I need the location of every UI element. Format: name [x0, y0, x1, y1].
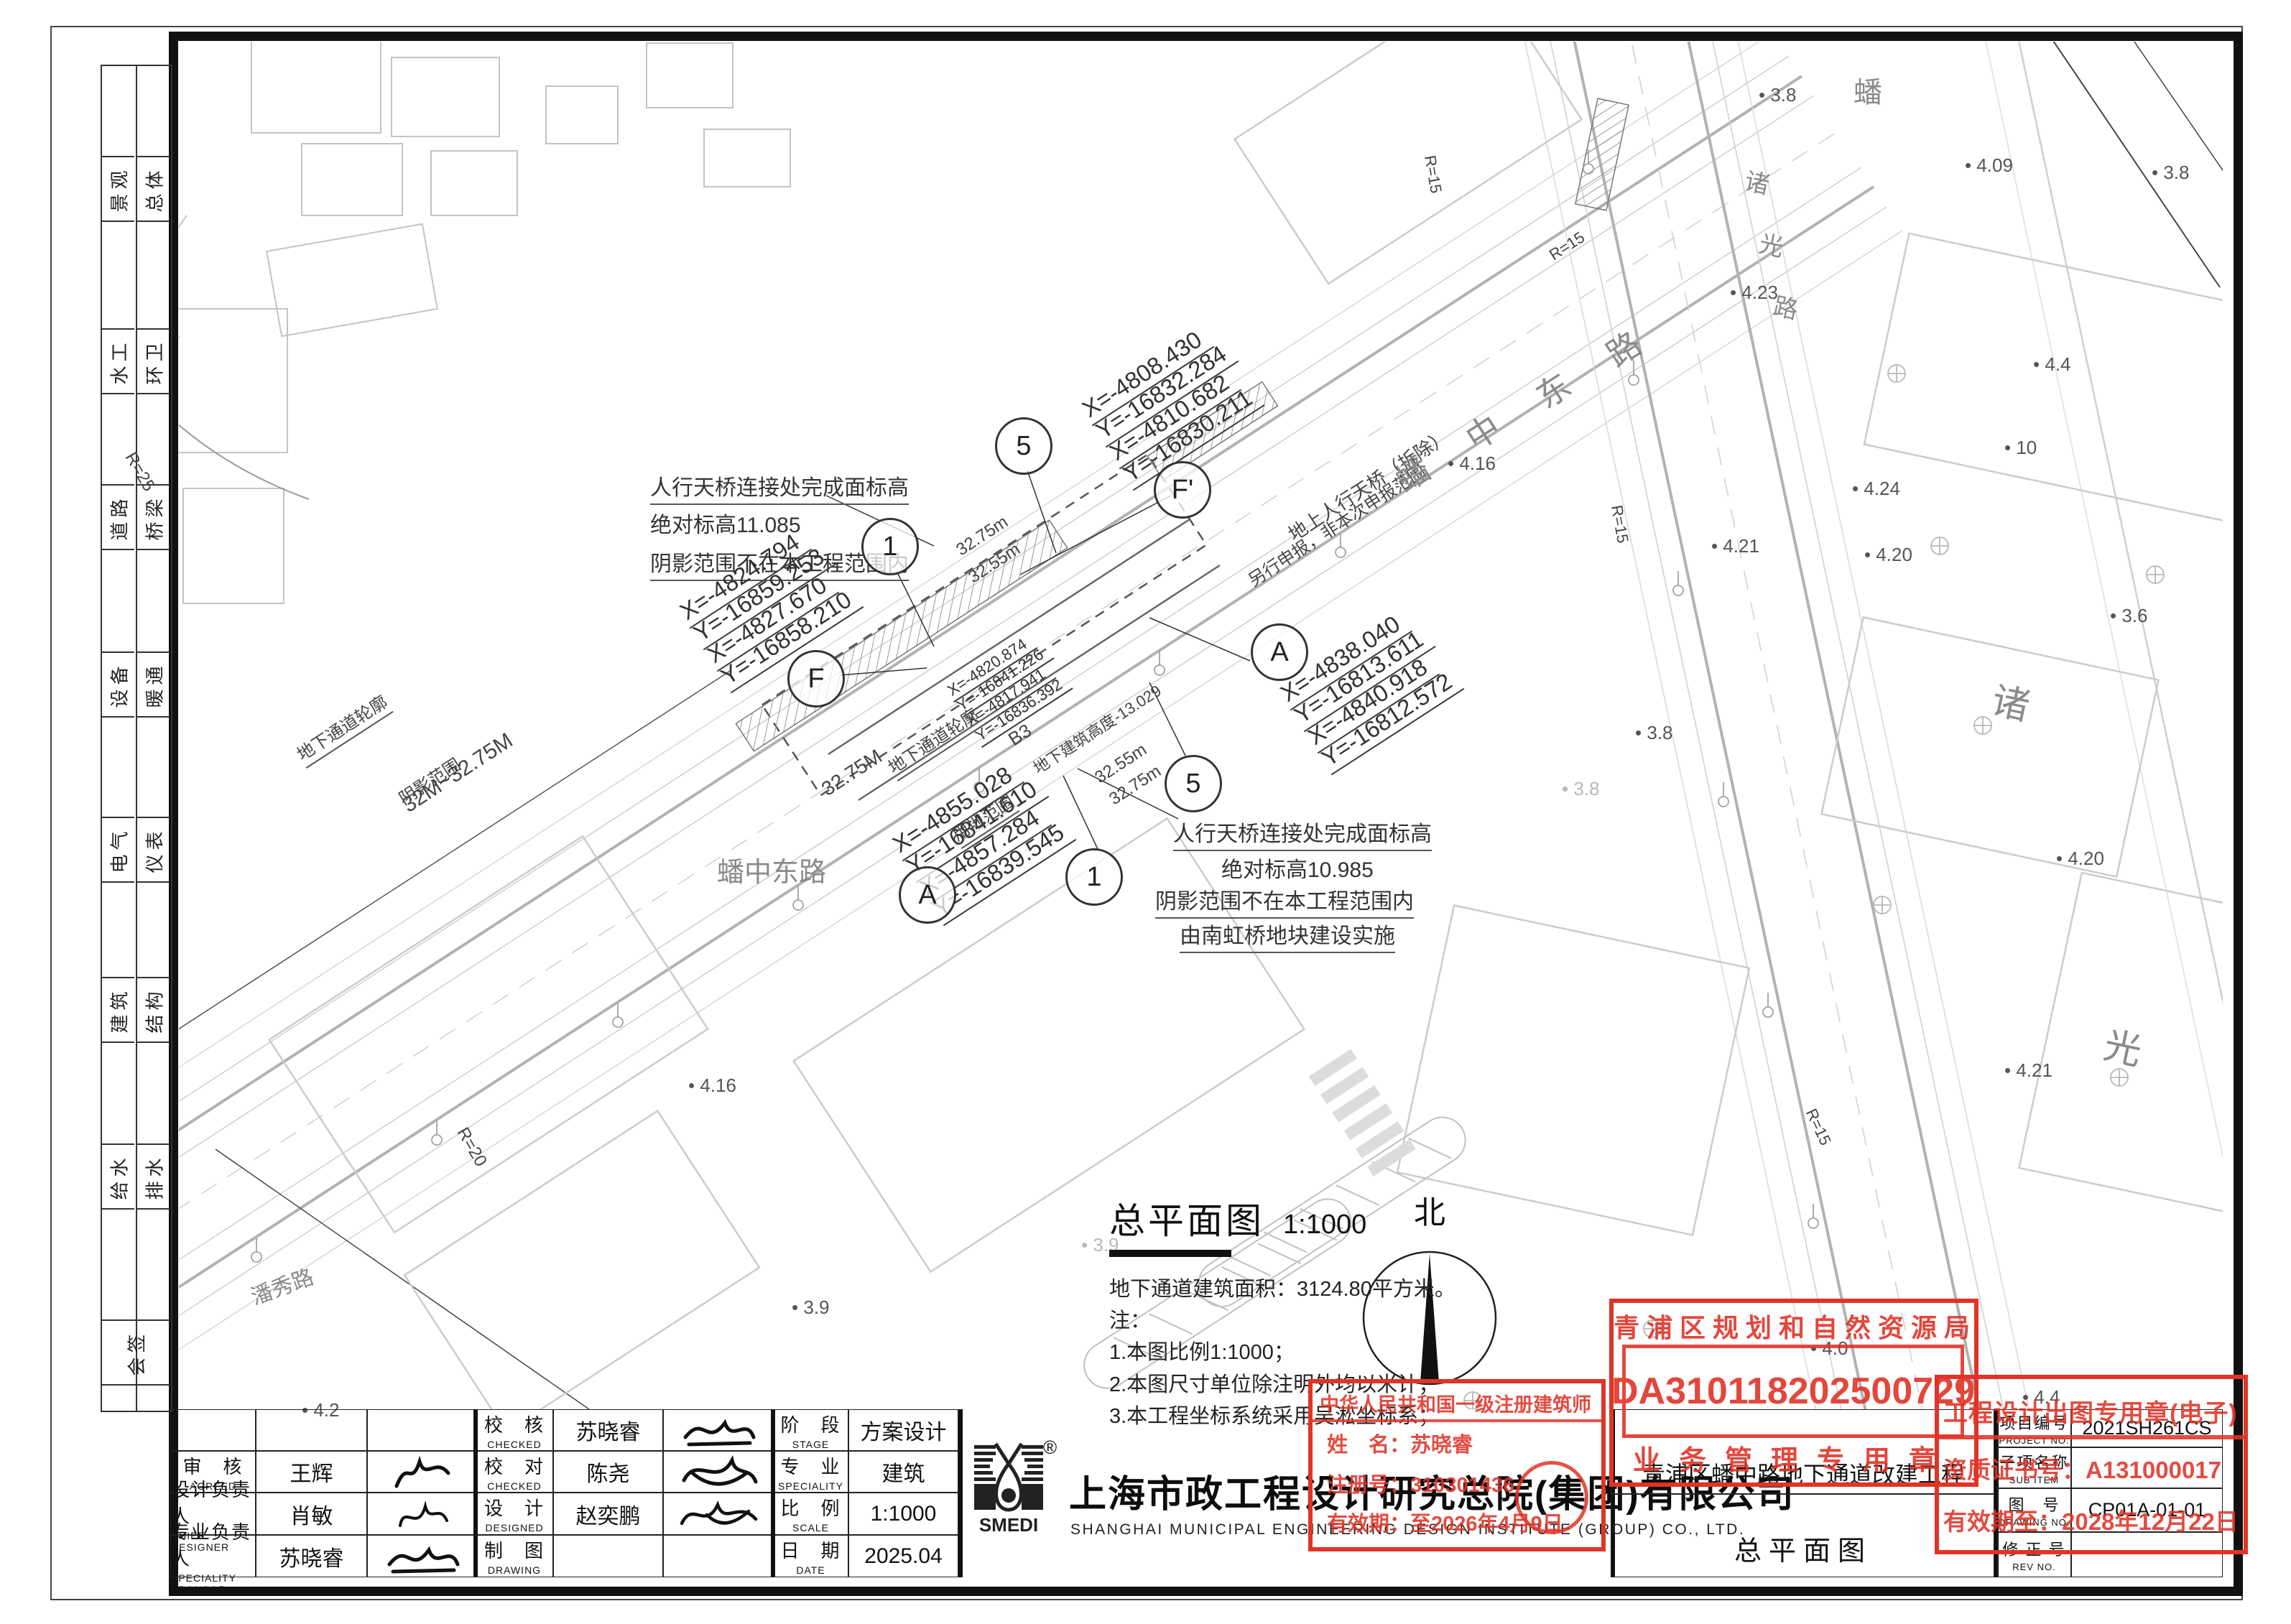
signoff-cell-水工: 水工	[102, 328, 134, 394]
rev-no-value	[2072, 1533, 2222, 1577]
checked-2-name: 陈尧	[554, 1452, 662, 1492]
designed-name: 赵奕鹏	[554, 1493, 662, 1534]
plan-label: 诸	[1988, 682, 2032, 728]
speciality-sponsor-name: 苏晓睿	[256, 1536, 366, 1577]
label-sub-item: 子项名称SUB ITEM	[1998, 1448, 2070, 1488]
callout-right-line1: 人行天桥连接处完成面标高	[1173, 823, 1432, 851]
spot-elevation: • 4.16	[688, 1075, 736, 1097]
grid-balloon-1: 1	[1065, 848, 1123, 906]
spot-elevation: • 3.8	[1635, 722, 1672, 744]
grid-balloon-A: A	[1251, 623, 1308, 681]
label-designed: 设 计DESIGNED	[476, 1493, 552, 1534]
spot-elevation: • 4.16	[1448, 453, 1496, 475]
spot-elevation: • 4.0	[1810, 1337, 1848, 1360]
callout-left-line2: 绝对标高11.085	[650, 514, 801, 537]
signoff-cell-暖通: 暖通	[137, 651, 170, 718]
spot-elevation: • 4.4	[2033, 353, 2070, 376]
plan-title: 总平面图	[1109, 1192, 1264, 1244]
note-area: 地下通道建筑面积：3124.80平方米。	[1109, 1277, 1455, 1301]
spot-elevation: • 10	[2004, 437, 2037, 459]
agreed-name: 王辉	[256, 1452, 366, 1492]
signoff-cell-总体: 总体	[137, 156, 170, 222]
note-1: 1.本图比例1:1000；	[1109, 1340, 1455, 1365]
speciality-value: 建筑	[849, 1452, 958, 1492]
label-scale: 比 例SCALE	[774, 1493, 848, 1534]
spot-elevation: • 4.24	[1852, 478, 1900, 500]
callout-right-line4: 由南虹桥地块建设实施	[1180, 925, 1395, 953]
signoff-cell-排水: 排水	[137, 1143, 170, 1210]
spot-elevation: • 4.20	[1864, 544, 1912, 566]
label-rev-no: 修 正 号REV NO.	[1998, 1533, 2070, 1577]
drawing-title: 总平面图	[1616, 1528, 1990, 1568]
signature-zhaoyipeng	[663, 1493, 773, 1535]
spot-elevation: • 4.21	[1711, 535, 1759, 557]
note-3: 3.本工程坐标系统采用吴淞坐标系；	[1109, 1404, 1455, 1429]
smedi-logo-text: SMEDI	[979, 1514, 1038, 1536]
spot-elevation: • 3.9	[792, 1296, 829, 1319]
signoff-strip: 景观总体水工环卫道路桥梁设备暖通电气仪表建筑结构给水排水会签	[101, 65, 172, 1412]
drawing-sheet: 景观总体水工环卫道路桥梁设备暖通电气仪表建筑结构给水排水会签 人行天桥连接处完成…	[0, 0, 2291, 1624]
signoff-cell-建筑: 建筑	[102, 977, 134, 1043]
signature-suxiaorui-1	[367, 1535, 476, 1577]
project-name: 青浦区蟠中路地下通道改建工程	[1616, 1457, 1990, 1490]
grid-balloon-F': F'	[1154, 461, 1211, 519]
label-checked-2: 校 对CHECKED	[476, 1452, 552, 1492]
signoff-cell-仪表: 仪表	[137, 817, 170, 883]
spot-elevation: • 4.09	[1965, 154, 2013, 177]
signoff-cell-给水: 给水	[102, 1143, 134, 1210]
spot-elevation: • 3.8	[1759, 84, 1796, 106]
drawing-no-value: CP01A-01-01	[2072, 1489, 2222, 1531]
spot-elevation: • 3.8	[2152, 162, 2189, 184]
grid-balloon-5: 5	[1165, 755, 1222, 812]
plan-title-underline	[1109, 1250, 1231, 1257]
signoff-cell-道路: 道路	[102, 484, 134, 550]
label-date: 日 期DATE	[774, 1536, 848, 1577]
label-project-no: 项目编号PROJECT NO.	[1998, 1410, 2070, 1447]
spot-elevation: • 3.8	[1562, 778, 1599, 800]
grid-balloon-F: F	[787, 650, 845, 707]
label-speciality: 专 业SPECIALITY	[774, 1452, 848, 1492]
plan-label: 光	[2100, 1026, 2144, 1072]
spot-elevation: • 4.21	[2004, 1059, 2052, 1082]
plan-title-scale: 1:1000	[1283, 1210, 1366, 1240]
project-no-value: 2021SH261CS	[2072, 1410, 2222, 1447]
registered-mark: ®	[1043, 1437, 1057, 1459]
plan-label: 诸	[1742, 169, 1772, 199]
checked-1-name: 苏晓睿	[554, 1410, 662, 1450]
signoff-cell-会签: 会签	[102, 1319, 170, 1386]
grid-balloon-5: 5	[995, 417, 1052, 475]
label-stage: 阶 段STAGE	[774, 1410, 848, 1450]
callout-left-line1: 人行天桥连接处完成面标高	[650, 477, 909, 505]
stage-value: 方案设计	[849, 1410, 958, 1450]
road-panzhongdong: 蟠中东路	[717, 859, 826, 888]
label-drawing: 制 图DRAWING	[476, 1536, 552, 1577]
plan-label: 光	[1757, 231, 1786, 261]
signature-chenyao	[663, 1451, 773, 1493]
callout-right-line3: 阴影范围不在本工程范围内	[1155, 891, 1414, 919]
spot-elevation: • 4.23	[1730, 282, 1778, 304]
note-2: 2.本图尺寸单位除注明外均以米计；	[1109, 1373, 1455, 1397]
signature-suxiaorui-2	[663, 1409, 773, 1451]
signoff-cell-景观: 景观	[102, 156, 134, 222]
spot-elevation: • 4.20	[2056, 848, 2104, 870]
signoff-cell-环卫: 环卫	[137, 328, 170, 394]
plan-notes: 总平面图 1:1000 地下通道建筑面积：3124.80平方米。 注： 1.本图…	[1109, 1192, 1455, 1429]
signoff-cell-电气: 电气	[102, 817, 134, 883]
date-value: 2025.04	[849, 1536, 958, 1577]
note-label: 注：	[1109, 1309, 1455, 1333]
signature-wanghui	[367, 1451, 476, 1493]
signoff-cell-设备: 设备	[102, 651, 134, 718]
grid-balloon-1: 1	[861, 518, 919, 575]
grid-balloon-A: A	[899, 866, 956, 924]
scale-value: 1:1000	[849, 1493, 958, 1534]
spot-elevation: • 4.4	[2022, 1386, 2060, 1409]
spot-elevation: • 3.6	[2110, 605, 2147, 627]
sub-item-value	[2072, 1448, 2222, 1488]
label-speciality-sponsor: 专业负责人SPECIALITY SPONSOR	[171, 1536, 255, 1577]
plan-label: 蟠	[1853, 78, 1882, 108]
label-checked-1: 校 核CHECKED	[476, 1410, 552, 1450]
signoff-cell-结构: 结构	[137, 977, 170, 1043]
chief-designer-name: 肖敏	[256, 1493, 366, 1534]
label-drawing-no: 图 号DRAWING NO.	[1998, 1489, 2070, 1531]
callout-right-line2: 绝对标高10.985	[1221, 859, 1374, 882]
signature-xiaomin	[367, 1493, 476, 1535]
